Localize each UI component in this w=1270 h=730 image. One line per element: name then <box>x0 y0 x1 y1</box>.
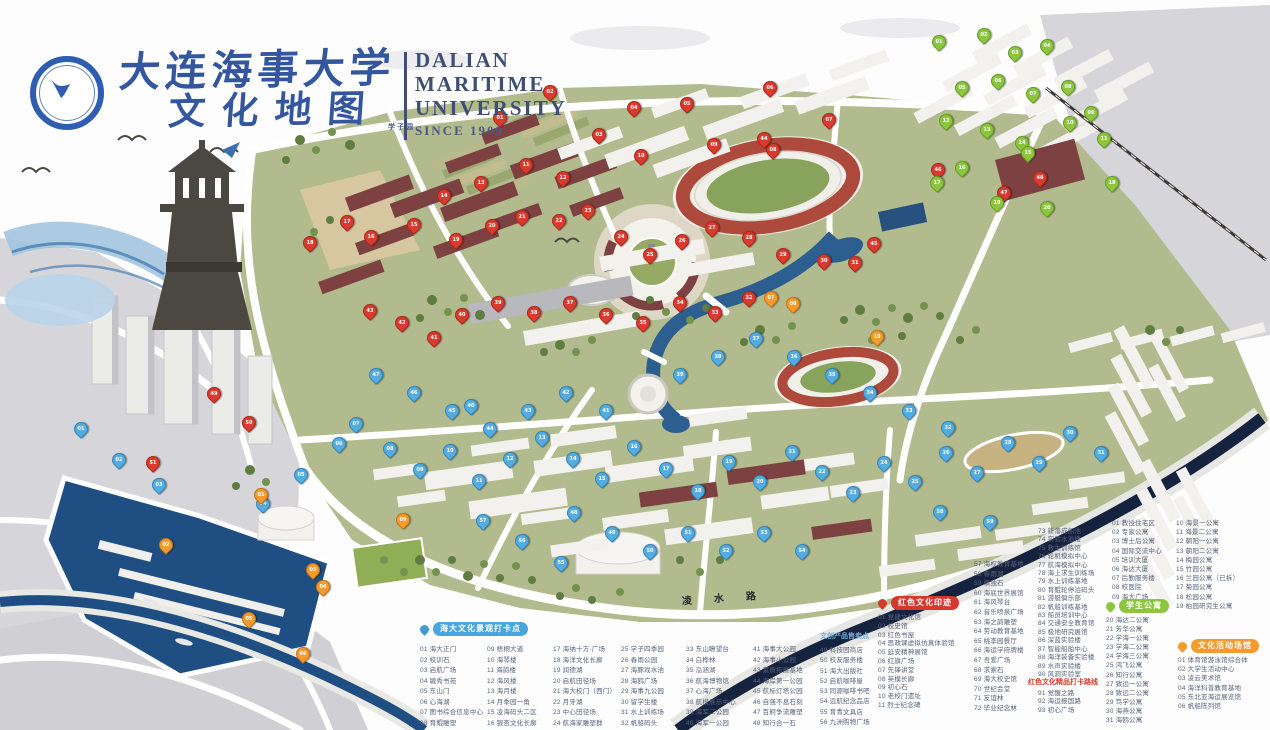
legend-item: 53 同源咖啡书吧 <box>820 687 870 697</box>
legend-item: 02 大学生活动中心 <box>1178 665 1248 674</box>
legend-item: 25 鸿飞公寓 <box>1106 661 1149 670</box>
legend-section-title: 海大文化景观打卡点 <box>433 622 528 636</box>
legend-item: 69 海大校史馆 <box>974 675 1024 685</box>
logo-bird-icon <box>46 72 76 102</box>
legend-item: 60 海底世界展馆 <box>974 589 1024 599</box>
legend-item: 07 图书综合信息中心 <box>420 708 483 719</box>
legend-item: 30 海燕公寓 <box>1106 707 1149 716</box>
legend-item: 24 学海三公寓 <box>1106 652 1149 661</box>
legend-column: 91 觉醒之路92 海运报国路93 初心广场 <box>1038 690 1081 715</box>
legend-item: 65 桃李园餐厅 <box>974 637 1024 647</box>
legend-item: 81 游艇俱乐部 <box>1038 595 1095 603</box>
legend-item: 19 润德湖 <box>553 666 616 677</box>
legend-item: 13 海月楼 <box>487 687 537 698</box>
legend-item: 77 航海模拟中心 <box>1038 562 1095 570</box>
legend-item: 16 兰园公寓（已拆） <box>1176 574 1239 583</box>
legend-item: 31 水上训练场 <box>621 708 664 719</box>
legend-item: 02 校训石 <box>420 656 483 667</box>
legend-item: 63 海之韵雕塑 <box>974 618 1024 628</box>
legend-column: 01 教授住宅区02 专家公寓03 博士后公寓04 国际交流中心05 培训大厦0… <box>1112 519 1162 602</box>
legend-item: 08 校医院 <box>1112 583 1162 592</box>
legend-item: 61 海风琴台 <box>974 598 1024 608</box>
legend-item: 45 航标灯塔公园 <box>753 687 803 698</box>
legend-item: 31 海鸥公寓 <box>1106 716 1149 725</box>
legend-item: 17 菊园公寓 <box>1176 583 1239 592</box>
legend-item: 29 海事九公园 <box>621 687 664 698</box>
legend-column: 01 体育馆游泳馆综合体02 大学生活动中心03 凌云美术馆04 海洋科普教育基… <box>1178 656 1248 711</box>
legend-item: 32 帆船码头 <box>621 719 664 730</box>
legend-item: 04 思政课虚拟仿真体验馆 <box>878 640 955 649</box>
legend-item: 09 梧桐大道 <box>487 645 537 656</box>
legend-item: 05 东山门 <box>420 687 483 698</box>
legend-item: 57 海权教育基地 <box>974 560 1024 570</box>
legend-column: 25 学子四季园26 春雨公园27 海豚戏水池28 海鸥广场29 海事九公园30… <box>621 645 664 729</box>
title-chinese: 大连海事大学 文化地图 <box>115 46 397 135</box>
legend-section-badge: 学生公寓 <box>1106 599 1169 613</box>
legend-item: 62 音乐喷泉广场 <box>974 608 1024 618</box>
legend-item: 07 先锋讲堂 <box>878 667 955 676</box>
legend-item: 10 老校门遗址 <box>878 693 955 702</box>
legend-item: 09 初心石 <box>878 684 955 693</box>
legend-item: 38 航模展示中心 <box>686 698 736 709</box>
legend-section-title: 学生公寓 <box>1119 599 1169 613</box>
legend-item: 93 初心广场 <box>1038 707 1081 715</box>
header: 大连海事大学 文化地图 DALIAN MARITIME UNIVERSITY S… <box>30 48 567 140</box>
legend-item: 13 朝阳二公寓 <box>1176 547 1239 556</box>
legend-item: 15 竹园公寓 <box>1176 565 1239 574</box>
legend-item: 59 慎独石 <box>974 579 1024 589</box>
legend-column: 41 海事大公园42 海事小公园43 素质拓展基地44 海岸第一公园45 航标灯… <box>753 645 803 729</box>
legend-item: 03 启航广场 <box>420 666 483 677</box>
legend-section-badge: 红色文化印迹 <box>878 596 959 610</box>
legend-item: 41 海事大公园 <box>753 645 803 656</box>
legend-item: 14 梅园公寓 <box>1176 556 1239 565</box>
legend-item: 04 毓秀书苑 <box>420 677 483 688</box>
legend-column: 49 科技园商店50 校友服务楼51 海大出版社52 启航咖啡屋53 同源咖啡书… <box>820 646 870 728</box>
legend-item: 71 友谊林 <box>974 694 1024 704</box>
legend-subheader: 红色文化精品打卡路线 <box>1028 679 1098 686</box>
title-since: SINCE 1909 <box>415 123 567 139</box>
legend-item: 06 海达大厦 <box>1112 565 1162 574</box>
legend-item: 79 水上训练基地 <box>1038 578 1095 586</box>
legend-section-badge: 海大文化景观打卡点 <box>420 622 528 636</box>
legend-column: 09 梧桐大道10 海琴楼11 海韵楼12 海风楼13 海月楼14 月季园一角1… <box>487 645 537 729</box>
legend-item: 23 中心田径场 <box>553 708 616 719</box>
legend-item: 04 海洋科普教育基地 <box>1178 684 1248 693</box>
legend-item: 26 知行公寓 <box>1106 671 1149 680</box>
legend-item: 42 海事小公园 <box>753 656 803 667</box>
legend-item: 54 远航纪念品店 <box>820 697 870 707</box>
legend-column: 01 海大正门02 校训石03 启航广场04 毓秀书苑05 东山门06 心海湖0… <box>420 645 483 729</box>
legend-item: 68 求索石 <box>974 666 1024 676</box>
legend-item: 11 海景二公寓 <box>1176 528 1239 537</box>
legend-item: 76 轮机模拟中心 <box>1038 553 1095 561</box>
legend-item: 47 百舸争流雕塑 <box>753 708 803 719</box>
legend-column: 57 海权教育基地58 春雨湖59 慎独石60 海底世界展馆61 海风琴台62 … <box>974 560 1024 714</box>
legend-item: 84 交通安全教育馆 <box>1038 620 1095 628</box>
legend-item: 30 留学生楼 <box>621 698 664 709</box>
legend-item: 55 育青文具店 <box>820 708 870 718</box>
legend-item: 66 海运学府牌楼 <box>974 646 1024 656</box>
legend-item: 87 智能船舶中心 <box>1038 646 1095 654</box>
legend-item: 33 东山瞭望台 <box>686 645 736 656</box>
legend-column: 10 海景一公寓11 海景二公寓12 朝阳一公寓13 朝阳二公寓14 梅园公寓1… <box>1176 519 1239 611</box>
legend-item: 06 红旗广场 <box>878 658 955 667</box>
legend-column: 01 党建文化馆02 校史馆03 红色书屋04 思政课虚拟仿真体验馆05 延安精… <box>878 614 955 711</box>
legend-item: 01 海大正门 <box>420 645 483 656</box>
title-cn-line2: 文化地图 <box>167 90 394 134</box>
legend-item: 75 救生训练馆 <box>1038 545 1095 553</box>
legend-item: 15 凌海码头二区 <box>487 708 537 719</box>
legend-item: 08 育鲲雕塑 <box>420 719 483 730</box>
legend-item: 58 春雨湖 <box>974 570 1024 580</box>
legend-item: 34 白桦林 <box>686 656 736 667</box>
legend-item: 37 心海广场 <box>686 687 736 698</box>
legend-item: 23 学海二公寓 <box>1106 643 1149 652</box>
legend-item: 64 劳动教育基地 <box>974 627 1024 637</box>
legend-item: 89 水声实验楼 <box>1038 663 1095 671</box>
legend-item: 86 深蓝实验楼 <box>1038 637 1095 645</box>
legend-section-title: 文化活动场馆 <box>1191 639 1259 653</box>
legend-item: 52 启航咖啡屋 <box>820 677 870 687</box>
legend-item: 20 启航田径场 <box>553 677 616 688</box>
legend-item: 88 海洋装备实验楼 <box>1038 654 1095 662</box>
legend-item: 19 柏园研究生公寓 <box>1176 602 1239 611</box>
legend-item: 18 海洋文化长廊 <box>553 656 616 667</box>
legend-column: 33 东山瞭望台34 白桦林35 泓涵湖36 航海博物馆37 心海广场38 航模… <box>686 645 736 729</box>
legend-item: 07 后勤服务楼 <box>1112 574 1162 583</box>
legend-item: 03 凌云美术馆 <box>1178 674 1248 683</box>
legend-item: 17 海纳十方·广场 <box>553 645 616 656</box>
legend-item: 20 海达二公寓 <box>1106 616 1149 625</box>
legend-item: 02 专家公寓 <box>1112 528 1162 537</box>
title-en-line3: UNIVERSITY <box>415 96 567 120</box>
legend-item: 74 实验水池楼 <box>1038 536 1095 544</box>
legend-item: 05 东北亚海运展览馆 <box>1178 693 1248 702</box>
legend-item: 40 海军一公园 <box>686 719 736 730</box>
legend-item: 35 泓涵湖 <box>686 666 736 677</box>
legend-item: 01 体育馆游泳馆综合体 <box>1178 656 1248 665</box>
legend-item: 22 月牙湖 <box>553 698 616 709</box>
legend-item: 12 海风楼 <box>487 677 537 688</box>
legend-item: 28 致远二公寓 <box>1106 689 1149 698</box>
title-english: DALIAN MARITIME UNIVERSITY SINCE 1909 <box>415 48 567 139</box>
legend-item: 36 航海博物馆 <box>686 677 736 688</box>
legend-subheader: 文创产品售卖点 <box>820 633 869 640</box>
legend-item: 43 素质拓展基地 <box>753 666 803 677</box>
legend-item: 49 科技园商店 <box>820 646 870 656</box>
legend-item: 06 心海湖 <box>420 698 483 709</box>
legend-item: 21 海大校门（西门） <box>553 687 616 698</box>
legend-item: 14 月季园一角 <box>487 698 537 709</box>
legend-item: 24 航海家雕塑群 <box>553 719 616 730</box>
legend-item: 21 芳华公寓 <box>1106 625 1149 634</box>
legend-item: 01 教授住宅区 <box>1112 519 1162 528</box>
legend-item: 51 海大出版社 <box>820 667 870 677</box>
legend-item: 12 朝阳一公寓 <box>1176 537 1239 546</box>
legend-item: 56 九洲购物广场 <box>820 718 870 728</box>
legend-item: 50 校友服务楼 <box>820 656 870 666</box>
legend-item: 04 国际交流中心 <box>1112 547 1162 556</box>
legend-item: 06 帆船陈列馆 <box>1178 702 1248 711</box>
legend-item: 10 海琴楼 <box>487 656 537 667</box>
legend-item: 05 培训大厦 <box>1112 556 1162 565</box>
red-pin-icon <box>876 597 889 610</box>
legend-section-badge: 文化活动场馆 <box>1178 639 1259 653</box>
legend-item: 46 自强不息石刻 <box>753 698 803 709</box>
legend-item: 27 海豚戏水池 <box>621 666 664 677</box>
legend-item: 11 海韵楼 <box>487 666 537 677</box>
title-cn-line1: 大连海事大学 <box>118 46 397 95</box>
university-logo <box>30 56 104 130</box>
legend-item: 72 毕业纪念林 <box>974 704 1024 714</box>
legend-item: 16 银杏文化长廊 <box>487 719 537 730</box>
legend-item: 03 博士后公寓 <box>1112 537 1162 546</box>
legend-item: 01 党建文化馆 <box>878 614 955 623</box>
title-en-line2: MARITIME <box>415 72 567 96</box>
campus-map-poster: 大连海事大学 文化地图 DALIAN MARITIME UNIVERSITY S… <box>0 0 1270 730</box>
legend-section-title: 红色文化印迹 <box>891 596 959 610</box>
legend-item: 27 致远一公寓 <box>1106 680 1149 689</box>
legend-column: 17 海纳十方·广场18 海洋文化长廊19 润德湖20 启航田径场21 海大校门… <box>553 645 616 729</box>
legend-item: 44 海岸第一公园 <box>753 677 803 688</box>
legend-item: 80 育鲲轮停泊码头 <box>1038 587 1095 595</box>
legend-item: 26 春雨公园 <box>621 656 664 667</box>
title-divider <box>404 52 407 140</box>
legend-item: 92 海运报国路 <box>1038 698 1081 706</box>
legend-item: 05 延安精神展馆 <box>878 649 955 658</box>
legend-item: 67 吾爱广场 <box>974 656 1024 666</box>
legend-item: 29 笃学公寓 <box>1106 698 1149 707</box>
legend-column: 20 海达二公寓21 芳华公寓22 学海一公寓23 学海二公寓24 学海三公寓2… <box>1106 616 1149 725</box>
legend-item: 48 知行合一石 <box>753 719 803 730</box>
legend-item: 39 海军二公园 <box>686 708 736 719</box>
legend-item: 11 烈士纪念碑 <box>878 702 955 711</box>
legend-item: 82 帆船训练基地 <box>1038 604 1095 612</box>
legend-item: 25 学子四季园 <box>621 645 664 656</box>
title-en-line1: DALIAN <box>415 48 567 72</box>
legend-item: 02 校史馆 <box>878 623 955 632</box>
legend-item: 10 海景一公寓 <box>1176 519 1239 528</box>
legend-column: 73 新落成船池74 实验水池楼75 救生训练馆76 轮机模拟中心77 航海模拟… <box>1038 528 1095 679</box>
legend-item: 18 松园公寓 <box>1176 593 1239 602</box>
legend-item: 22 学海一公寓 <box>1106 634 1149 643</box>
legend-item: 28 海鸥广场 <box>621 677 664 688</box>
orange-pin-icon <box>1176 640 1189 653</box>
legend-item: 70 世纪会堂 <box>974 685 1024 695</box>
blue-pin-icon <box>418 623 431 636</box>
green-pin-icon <box>1104 600 1117 613</box>
